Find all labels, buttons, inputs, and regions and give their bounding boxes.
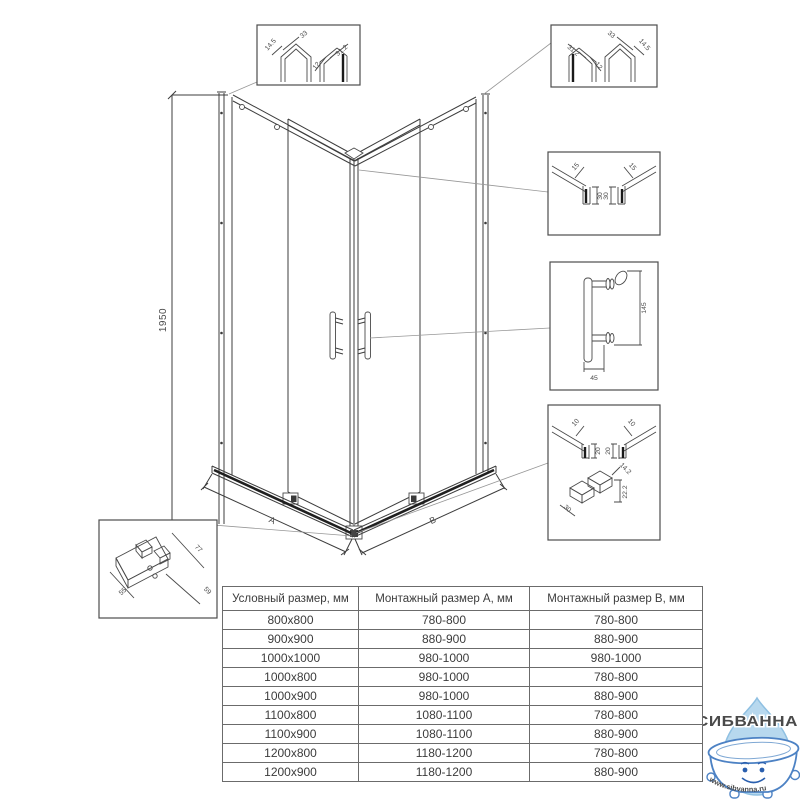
detail-mr-dim-30-right: 30 bbox=[603, 192, 610, 200]
cell-size-b: 880-900 bbox=[530, 630, 703, 649]
cell-size-b: 780-800 bbox=[530, 706, 703, 725]
cell-size-a: 880-900 bbox=[359, 630, 530, 649]
cell-size-a: 1080-1100 bbox=[359, 725, 530, 744]
cell-size-b: 880-900 bbox=[530, 725, 703, 744]
cell-size-b: 880-900 bbox=[530, 687, 703, 706]
shower-enclosure-drawing: 1950 A B bbox=[158, 91, 507, 555]
detail-br-dim-20-left: 20 bbox=[595, 447, 602, 455]
cell-nominal: 800x800 bbox=[223, 611, 359, 630]
cell-size-a: 1080-1100 bbox=[359, 706, 530, 725]
dimension-b-label: B bbox=[428, 514, 438, 526]
table-row: 1200x800 1180-1200 780-800 bbox=[223, 744, 703, 763]
cell-size-a: 980-1000 bbox=[359, 649, 530, 668]
cell-size-a: 780-800 bbox=[359, 611, 530, 630]
cell-nominal: 1200x900 bbox=[223, 763, 359, 782]
left-wall-profile bbox=[217, 92, 232, 524]
cell-size-b: 880-900 bbox=[530, 763, 703, 782]
col-header-nominal-size: Условный размер, мм bbox=[223, 587, 359, 611]
right-sliding-door bbox=[354, 119, 424, 524]
cell-size-b: 980-1000 bbox=[530, 649, 703, 668]
table-row: 1000x800 980-1000 780-800 bbox=[223, 668, 703, 687]
cell-size-a: 1180-1200 bbox=[359, 763, 530, 782]
table-row: 900x900 880-900 880-900 bbox=[223, 630, 703, 649]
logo-brand-text: СИБВАННА bbox=[696, 713, 798, 730]
corner-post bbox=[345, 148, 363, 539]
right-wall-profile bbox=[476, 94, 490, 474]
cell-nominal: 1000x800 bbox=[223, 668, 359, 687]
detail-box-handle: 145 45 bbox=[550, 262, 658, 390]
detail-br-dim-20-right: 20 bbox=[605, 447, 612, 455]
table-row: 1200x900 1180-1200 880-900 bbox=[223, 763, 703, 782]
cell-nominal: 1000x1000 bbox=[223, 649, 359, 668]
table-row: 1100x900 1080-1100 880-900 bbox=[223, 725, 703, 744]
table-row: 1100x800 1080-1100 780-800 bbox=[223, 706, 703, 725]
cell-size-b: 780-800 bbox=[530, 744, 703, 763]
cell-size-b: 780-800 bbox=[530, 668, 703, 687]
cell-nominal: 900x900 bbox=[223, 630, 359, 649]
cell-nominal: 1100x900 bbox=[223, 725, 359, 744]
col-header-mount-size-b: Монтажный размер B, мм bbox=[530, 587, 703, 611]
table-row: 1000x1000 980-1000 980-1000 bbox=[223, 649, 703, 668]
cell-size-a: 1180-1200 bbox=[359, 744, 530, 763]
left-door-handle bbox=[330, 312, 343, 359]
table-row: 1000x900 980-1000 880-900 bbox=[223, 687, 703, 706]
height-dimension-label: 1950 bbox=[158, 308, 169, 332]
cell-nominal: 1200x800 bbox=[223, 744, 359, 763]
logo: СИБВАННА www.sibvanna.ru bbox=[696, 698, 800, 798]
detail-br-dim-22-2: 22.2 bbox=[622, 485, 629, 498]
detail-box-top-right: 31.2 12 33 14.5 bbox=[551, 25, 657, 87]
right-door-handle bbox=[358, 312, 371, 359]
left-sliding-door bbox=[283, 119, 354, 524]
cell-size-a: 980-1000 bbox=[359, 687, 530, 706]
page: 1950 A B 14.5 33 12 31.2 bbox=[0, 0, 800, 800]
detail-handle-dim-145: 145 bbox=[641, 302, 648, 314]
height-dimension: 1950 bbox=[158, 91, 228, 548]
cell-nominal: 1100x800 bbox=[223, 706, 359, 725]
detail-box-mid-right: 15 30 15 30 bbox=[548, 152, 660, 235]
cell-size-b: 780-800 bbox=[530, 611, 703, 630]
table-row: 800x800 780-800 780-800 bbox=[223, 611, 703, 630]
cell-size-a: 980-1000 bbox=[359, 668, 530, 687]
size-table: Условный размер, мм Монтажный размер A, … bbox=[222, 586, 703, 782]
size-table-header-row: Условный размер, мм Монтажный размер A, … bbox=[223, 587, 703, 611]
detail-box-bottom-left: 55 77 59 bbox=[99, 520, 217, 618]
cell-nominal: 1000x900 bbox=[223, 687, 359, 706]
detail-handle-dim-45: 45 bbox=[590, 375, 598, 382]
detail-box-bottom-right: 10 20 10 20 14.2 22.2 30 bbox=[548, 405, 660, 540]
detail-box-top-left: 14.5 33 12 31.2 bbox=[257, 25, 360, 85]
col-header-mount-size-a: Монтажный размер A, мм bbox=[359, 587, 530, 611]
